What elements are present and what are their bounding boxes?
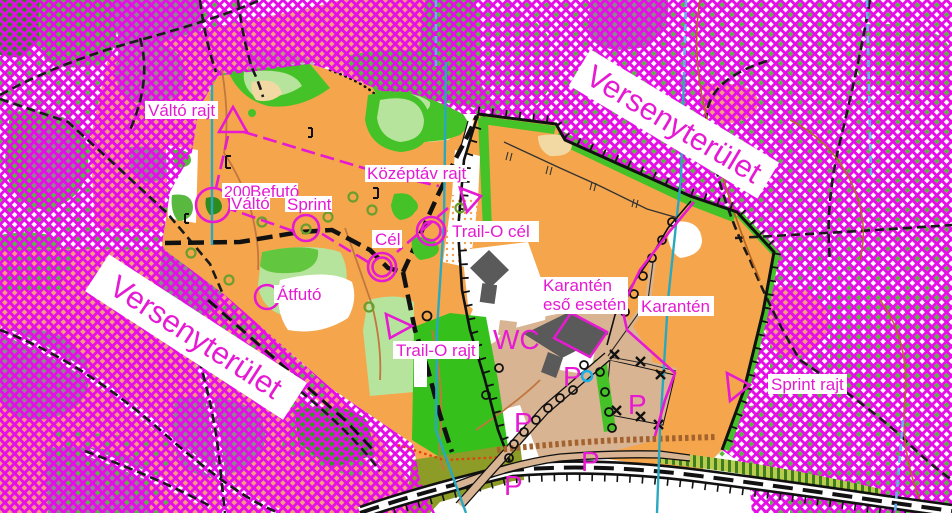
svg-text:P: P <box>514 407 533 438</box>
svg-text:Trail-O cél: Trail-O cél <box>452 222 530 241</box>
svg-text:Átfutó: Átfutó <box>277 285 321 304</box>
svg-text:Váltó: Váltó <box>231 194 270 213</box>
svg-text:P: P <box>504 470 523 501</box>
svg-text:Sprint: Sprint <box>287 195 332 214</box>
svg-text:P: P <box>563 361 582 392</box>
svg-text:Karantén: Karantén <box>641 297 710 316</box>
svg-text:P: P <box>581 446 600 477</box>
svg-text:Középtáv rajt: Középtáv rajt <box>367 164 466 183</box>
svg-text:Karantén: Karantén <box>543 276 612 295</box>
svg-text:WC: WC <box>493 324 540 355</box>
svg-text:eső esetén: eső esetén <box>543 295 626 314</box>
svg-text:Cél: Cél <box>375 230 401 249</box>
svg-text:Váltó rajt: Váltó rajt <box>148 101 215 120</box>
svg-text:Sprint rajt: Sprint rajt <box>771 375 844 394</box>
svg-text:Trail-O rajt: Trail-O rajt <box>396 341 476 360</box>
svg-text:P: P <box>628 389 647 420</box>
